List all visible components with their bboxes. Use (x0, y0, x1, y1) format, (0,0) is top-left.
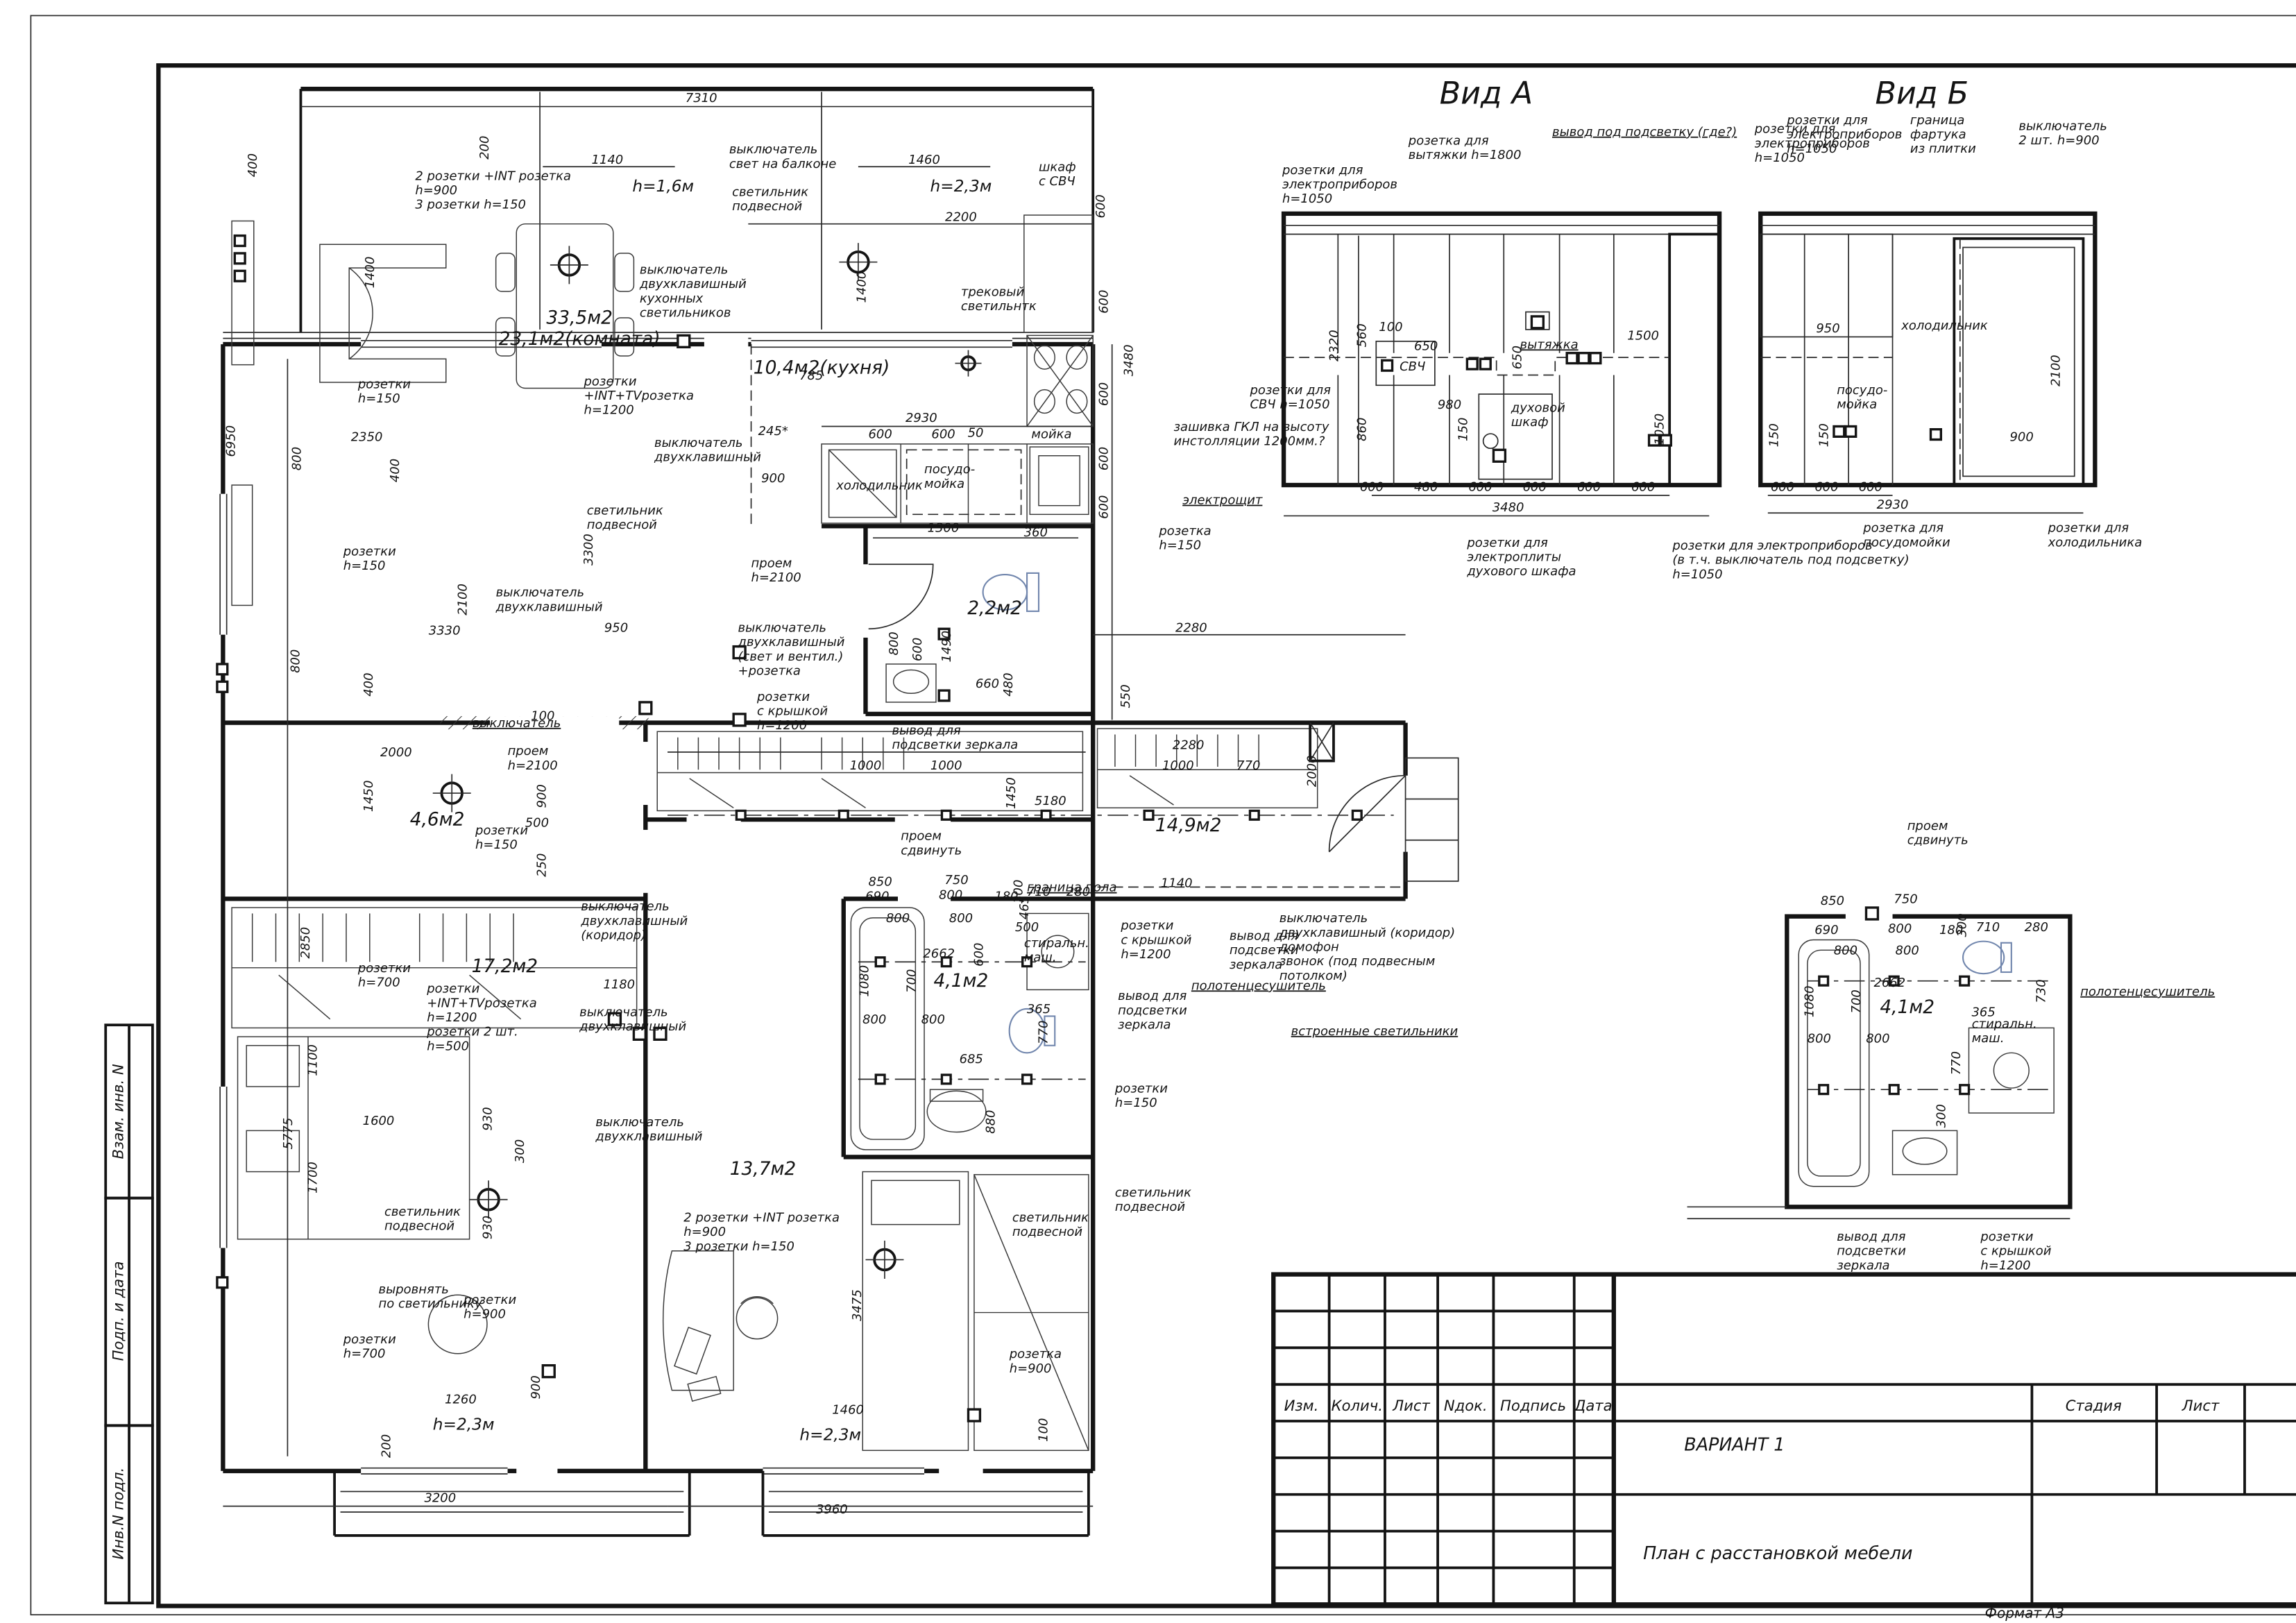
dimension: 2000 (1305, 755, 1320, 787)
dimension: 600 (1522, 480, 1546, 495)
dimension: 2320 (1327, 330, 1341, 362)
annotation: розетка дляпосудомойки (1862, 521, 1950, 550)
dimension: 800 (939, 887, 962, 902)
dimension: 1400 (363, 257, 377, 289)
dimension: 1000 (930, 758, 962, 773)
stamp-cell-label: Взам. инв. N (110, 1064, 127, 1159)
annotation: проемh=2100 (751, 556, 801, 585)
dimension: 1080 (1802, 985, 1817, 1017)
dimension: 300 (1934, 1104, 1949, 1128)
dimension: 730 (2034, 979, 2048, 1003)
annotation: СВЧ (1400, 359, 1425, 374)
annotation: полотенцесушитель (1191, 978, 1326, 993)
dimension: 480 (1001, 672, 1016, 696)
dimension: 800 (949, 911, 973, 926)
dimension: 1000 (850, 758, 882, 773)
dimension: 1500 (1627, 329, 1659, 343)
room-area-label: 4,6м2 (410, 809, 465, 831)
dimension: 2100 (455, 584, 470, 615)
view-a-drawing (1284, 214, 1719, 516)
annotation: мойка (1031, 427, 1071, 441)
annotation: выключательдвухклавишный (579, 1005, 686, 1034)
dimension: 100 (1379, 320, 1402, 334)
dimension: 750 (1894, 892, 1917, 907)
dimension: 800 (1888, 921, 1912, 936)
dimension: 200 (379, 1434, 393, 1458)
dimension: 500 (525, 816, 549, 831)
dimension: 850 (1821, 894, 1844, 908)
annotation: выключательдвухклавишный (595, 1115, 702, 1144)
dimension: 1300 (928, 521, 960, 536)
dimension: 1400 (854, 271, 869, 303)
annotation: светильникподвесной (1115, 1186, 1191, 1215)
dimension: 710 (1976, 920, 2000, 935)
dimension: 1140 (1161, 876, 1193, 890)
room-area-label: 17,2м2 (472, 955, 538, 977)
annotation: выключатель2 шт. h=900 (2018, 119, 2107, 148)
annotation: розеткиh=700 (343, 1332, 396, 1361)
dimension: 600 (1631, 480, 1655, 495)
dimension: 800 (1866, 1032, 1889, 1046)
dimension: 245* (758, 424, 788, 439)
dimension: 900 (2009, 430, 2033, 445)
dimension: 930 (480, 1216, 495, 1239)
annotation: розетки дляСВЧ h=1050 (1249, 383, 1331, 412)
dimension: 1460 (908, 153, 940, 167)
dimension: 3480 (1493, 500, 1524, 515)
annotation: вывод дляподсветкизеркала (1118, 989, 1187, 1032)
dimension: 2350 (351, 430, 383, 445)
annotation: холодильник (1900, 318, 1988, 333)
dimension: 2100 (2049, 355, 2064, 386)
annotation: розеткиh=150 (475, 823, 528, 852)
pendant-light-icon (470, 1180, 508, 1218)
annotation: выключательдвухклавишный(свет и вентил.)… (738, 620, 845, 678)
dimension: 7310 (686, 91, 717, 105)
format-label: Формат А3 (1985, 1604, 2064, 1621)
dimension: 1450 (362, 780, 376, 812)
dimension: 700 (904, 969, 919, 993)
annotation: выключательдвухклавишныйкухонныхсветильн… (639, 263, 747, 321)
room-area-label: 33,5м223,1м2(комната) (499, 307, 661, 349)
annotation: розеткиh=150 (343, 545, 396, 574)
annotation: выключательдвухклавишный (495, 586, 603, 615)
dimension: 360 (1024, 525, 1048, 540)
annotation: вывод под подсветку (где?) (1552, 125, 1737, 139)
dimension: 1140 (591, 153, 623, 167)
dimension: 250 (535, 853, 550, 877)
annotation: розетки дляэлектроприборовh=1050 (1282, 163, 1397, 206)
annotation: розеткиh=900 (463, 1293, 516, 1322)
dimension: 5775 (281, 1118, 296, 1150)
annotation: зашивка ГКЛ на высотуинстолляции 1200мм.… (1174, 420, 1329, 449)
dimension: 600 (1096, 447, 1111, 470)
dimension: 480 (1414, 480, 1438, 495)
room-area-label: 4,1м2 (934, 970, 989, 992)
titleblock-col: Nдок. (1444, 1397, 1488, 1414)
height-note: h=2,3м (930, 177, 992, 196)
titleblock-col: Изм. (1284, 1397, 1319, 1414)
annotation: вытяжка (1520, 337, 1578, 352)
pendant-light-icon (433, 774, 471, 813)
annotation: выключательсвет на балконе (729, 142, 836, 171)
annotation: вывод дляподсветкизеркала (1837, 1230, 1906, 1273)
dimension: 3300 (581, 534, 596, 566)
dimension: 500 (1015, 920, 1039, 935)
dimension: 1180 (603, 977, 635, 992)
dimension: 800 (886, 911, 910, 926)
drawing-sheet: Взам. инв. N Подп. и дата Инв.N подл. Из… (0, 0, 2296, 1623)
dimension: 400 (388, 459, 402, 482)
annotation: розетки+INT+TVрозеткаh=1200 (584, 374, 694, 417)
variant-title: ВАРИАНТ 1 (1684, 1434, 1785, 1454)
annotation: трековыйсветильнтк (961, 284, 1037, 314)
dimension: 685 (960, 1052, 983, 1067)
track-light-icon (955, 350, 981, 377)
dimension: 1050 (1653, 414, 1667, 445)
dimension: 980 (1438, 398, 1461, 412)
annotation: духовойшкаф (1511, 400, 1565, 430)
titleblock-sheet: Лист (2182, 1397, 2220, 1414)
dimension: 900 (761, 471, 785, 486)
drawing-title: План с расстановкой мебели (1643, 1543, 1912, 1563)
stamp-cell-label: Подп. и дата (110, 1261, 127, 1361)
view-b-title: Вид Б (1876, 76, 1969, 111)
dimension: 1000 (1162, 758, 1194, 773)
annotation: 2 розетки +INT розеткаh=9003 розетки h=1… (415, 169, 571, 212)
dimension: 690 (1814, 923, 1838, 937)
annotation: выключательдвухклавишный(коридор) (580, 899, 688, 942)
annotation: выключательдвухклавишный (коридор)домофо… (1279, 911, 1455, 983)
dimension: 660 (976, 677, 999, 691)
title-block: Изм. Колич. Лист Nдок. Подпись Дата Стад… (1273, 1275, 2296, 1622)
pendant-light-icon (865, 1241, 903, 1279)
dimension: 600 (1360, 480, 1384, 495)
dimension: 770 (1236, 758, 1260, 773)
dimension: 150 (1767, 423, 1782, 447)
dimension: 2850 (298, 927, 313, 959)
dimension: 600 (1096, 495, 1111, 519)
annotation: посудо-мойка (1837, 383, 1887, 412)
annotation: посудо-мойка (924, 462, 975, 491)
dimension: 800 (862, 1012, 886, 1027)
room-area-label: 14,9м2 (1155, 815, 1222, 836)
dimension: 700 (1849, 989, 1864, 1013)
annotation: вывод дляподсветки зеркала (892, 723, 1019, 752)
dimension: 2280 (1173, 738, 1205, 753)
annotation: розетка длявытяжки h=1800 (1408, 134, 1522, 163)
annotation: встроенные светильники (1291, 1024, 1459, 1039)
dimension: 950 (604, 620, 628, 635)
detail-bath-drawing (1687, 908, 2070, 1218)
annotation: шкафс СВЧ (1039, 160, 1076, 189)
dimension: 560 (1354, 323, 1369, 347)
dimension: 800 (289, 447, 304, 470)
dimension: 200 (477, 136, 492, 160)
annotation: розеткаh=150 (1158, 524, 1211, 553)
annotation: розеткис крышкойh=1200 (1980, 1230, 2051, 1273)
dimension: 770 (1037, 1021, 1051, 1044)
titleblock-col: Лист (1392, 1397, 1430, 1414)
dimension: 2280 (1175, 620, 1207, 635)
dimension: 860 (1354, 418, 1369, 441)
annotation: светильникподвесной (587, 503, 663, 532)
dimension: 2930 (1877, 498, 1909, 512)
dimension: 600 (1096, 382, 1111, 406)
annotation: розетки+INT+TVрозеткаh=1200розетки 2 шт.… (426, 982, 536, 1054)
plan-walls (223, 89, 1405, 1471)
annotation: проемh=2100 (508, 744, 558, 773)
dimension: 600 (1859, 480, 1882, 495)
dimension: 900 (535, 784, 550, 808)
annotation: светильникподвесной (732, 185, 808, 214)
annotation: светильникподвесной (384, 1205, 461, 1234)
annotation: розеткаh=900 (1009, 1347, 1062, 1376)
annotation: розеткиh=150 (357, 377, 411, 407)
dimension: 600 (868, 427, 892, 441)
dimension: 5180 (1035, 794, 1066, 808)
dimension: 2000 (380, 745, 412, 760)
dimension: 600 (1577, 480, 1601, 495)
titleblock-stage: Стадия (2066, 1397, 2122, 1414)
annotation: стиральн.маш. (1024, 936, 1089, 965)
dimension: 690 (865, 889, 889, 903)
dimension: 1490 (939, 631, 954, 663)
dimension: 710 (1027, 885, 1051, 899)
dimension: 950 (1816, 321, 1839, 336)
dimension: 400 (362, 672, 376, 696)
annotation: розетки дляэлектроплитыдухового шкафа (1466, 536, 1576, 579)
dimension: 50 (968, 425, 984, 440)
dimension: 750 (944, 873, 968, 887)
dimension: 880 (984, 1110, 998, 1134)
annotation: розеткиh=700 (357, 961, 411, 990)
dimension: 3475 (850, 1289, 865, 1321)
dimension: 850 (868, 874, 892, 889)
height-note: h=2,3м (799, 1426, 861, 1445)
annotation: проемсдвинуть (901, 829, 962, 858)
dimension: 600 (1771, 480, 1794, 495)
dimension: 1600 (363, 1114, 395, 1128)
dimension: 2662 (923, 946, 955, 961)
dimension: 300 (1012, 880, 1026, 903)
dimension: 600 (931, 427, 955, 441)
dimension: 785 (799, 368, 823, 383)
height-note: h=1,6м (632, 177, 694, 196)
dimension: 900 (529, 1375, 543, 1399)
dimension: 600 (1094, 194, 1108, 218)
dimension: 100 (531, 708, 554, 723)
titleblock-col: Подпись (1500, 1397, 1566, 1414)
view-b-drawing (1760, 214, 2095, 513)
dimension: 550 (1119, 684, 1133, 708)
dimension: 2930 (905, 411, 937, 425)
detail-labels: проемсдвинуть полотенцесушитель 850 750 … (1802, 819, 2215, 1273)
annotation: границафартукаиз плитки (1910, 113, 1976, 156)
dimension: 600 (1468, 480, 1492, 495)
room-area-label: 2,2м2 (967, 597, 1022, 619)
dimension: 800 (887, 631, 901, 655)
dimension: 600 (1814, 480, 1838, 495)
dimension: 150 (1817, 423, 1832, 447)
balconies (334, 758, 1459, 1536)
dimension: 100 (1037, 1418, 1051, 1442)
dimension: 2200 (945, 210, 977, 224)
room-area-label: 4,1м2 (1880, 996, 1934, 1018)
dimension: 800 (1834, 944, 1857, 958)
titleblock-col: Дата (1574, 1397, 1613, 1414)
annotation: 2 розетки +INT розеткаh=9003 розетки h=1… (683, 1210, 840, 1253)
annotation: розеткис крышкойh=1200 (1120, 919, 1191, 962)
view-titles: Вид А Вид Б (1440, 76, 1968, 111)
dimension: 3960 (816, 1502, 848, 1517)
pendant-light-icon (550, 246, 588, 284)
annotation: выключательдвухклавишный (654, 436, 761, 465)
dimension: 600 (910, 638, 925, 661)
dimension: 365 (1027, 1002, 1051, 1017)
dimension: 1080 (858, 965, 872, 997)
dimension: 1460 (832, 1402, 864, 1417)
dimension: 3480 (1121, 344, 1136, 376)
annotation: розеткис крышкойh=1200 (756, 690, 828, 733)
dimension: 150 (1456, 418, 1470, 441)
dimension: 365 (1971, 1005, 1995, 1019)
dimension: 280 (1066, 885, 1090, 899)
dimension: 600 (972, 943, 987, 967)
annotation: светильникподвесной (1012, 1210, 1089, 1239)
annotation: холодильник (835, 478, 923, 493)
annotation: проемсдвинуть (1907, 819, 1968, 848)
view-a-title: Вид А (1440, 76, 1533, 111)
dimension: 1260 (445, 1393, 477, 1407)
annotation: стиральн.маш. (1972, 1017, 2037, 1046)
dimension: 6950 (223, 425, 238, 457)
dimension: 1700 (306, 1162, 321, 1193)
dimension: 770 (1949, 1051, 1964, 1075)
dimension: 800 (1896, 944, 1919, 958)
left-stamp: Взам. инв. N Подп. и дата Инв.N подл. (105, 1025, 153, 1603)
dimension: 300 (513, 1139, 527, 1163)
dimension: 800 (288, 649, 303, 673)
dimension: 280 (2025, 920, 2048, 935)
stamp-cell-label: Инв.N подл. (110, 1468, 127, 1560)
titleblock-col: Колич. (1332, 1397, 1383, 1414)
annotation: розетки дляхолодильника (2048, 521, 2143, 550)
annotation: розеткиh=150 (1114, 1081, 1168, 1110)
dimension: 300 (1955, 913, 1969, 937)
dimension: 600 (1096, 290, 1111, 314)
annotation: полотенцесушитель (2080, 985, 2215, 999)
dimension: 3330 (429, 624, 461, 638)
dimension: 1450 (1004, 777, 1019, 809)
dimension: 930 (480, 1107, 495, 1130)
dimension: 800 (921, 1012, 945, 1027)
dimension: 1100 (306, 1044, 321, 1076)
dimension: 800 (1808, 1032, 1831, 1046)
dimension: 650 (1414, 339, 1438, 354)
dimension: 2662 (1873, 976, 1905, 990)
dimension: 400 (246, 153, 260, 177)
height-note: h=2,3м (433, 1416, 495, 1434)
dimension: 3200 (424, 1490, 456, 1505)
room-area-label: 13,7м2 (730, 1158, 797, 1180)
dimension: 650 (1511, 346, 1525, 369)
annotation: электрощит (1182, 493, 1263, 508)
